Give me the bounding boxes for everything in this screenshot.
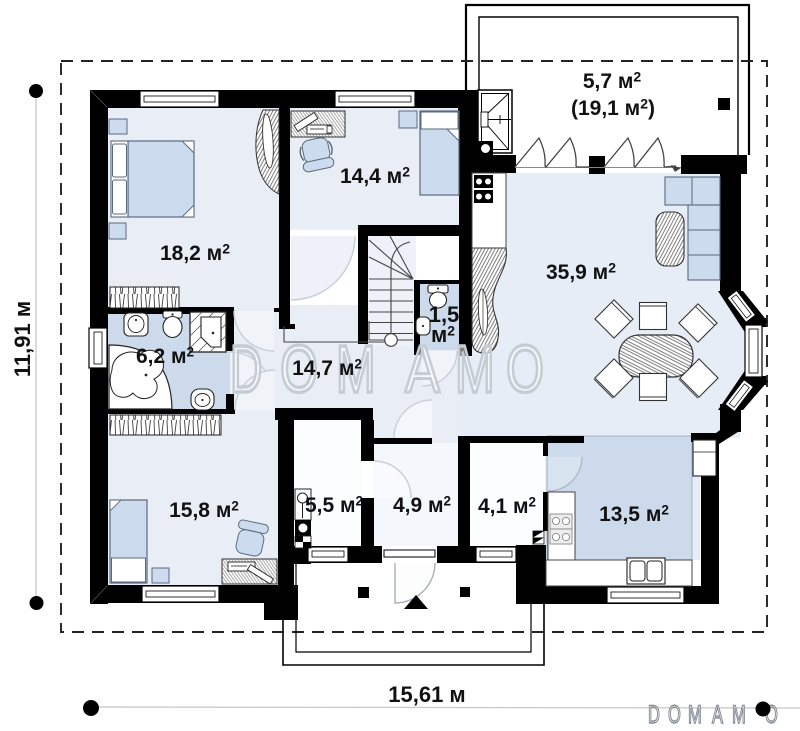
svg-text:O: O: [506, 333, 544, 407]
svg-text:35,9 м2: 35,9 м2: [546, 260, 616, 285]
svg-text:15,61 м: 15,61 м: [388, 682, 465, 707]
svg-text:14,7 м2: 14,7 м2: [292, 357, 362, 381]
svg-text:M: M: [688, 702, 702, 729]
svg-text:M: M: [732, 702, 746, 729]
svg-text:M: M: [455, 332, 495, 407]
svg-text:14,4 м2: 14,4 м2: [340, 164, 410, 189]
svg-text:A: A: [712, 702, 724, 729]
svg-text:5,7 м2: 5,7 м2: [583, 69, 642, 94]
svg-text:4,1 м2: 4,1 м2: [478, 495, 536, 519]
svg-text:D: D: [648, 702, 660, 729]
svg-text:O: O: [668, 702, 681, 729]
svg-text:4,9 м2: 4,9 м2: [393, 494, 451, 518]
svg-text:18,2 м2: 18,2 м2: [160, 241, 230, 266]
svg-text:15,8 м2: 15,8 м2: [169, 499, 239, 523]
svg-text:13,5 м2: 13,5 м2: [599, 503, 669, 527]
svg-text:D: D: [230, 332, 262, 407]
svg-text:6,2 м2: 6,2 м2: [136, 345, 194, 369]
svg-text:5,5 м2: 5,5 м2: [305, 494, 363, 518]
svg-text:11,91 м: 11,91 м: [10, 301, 35, 377]
